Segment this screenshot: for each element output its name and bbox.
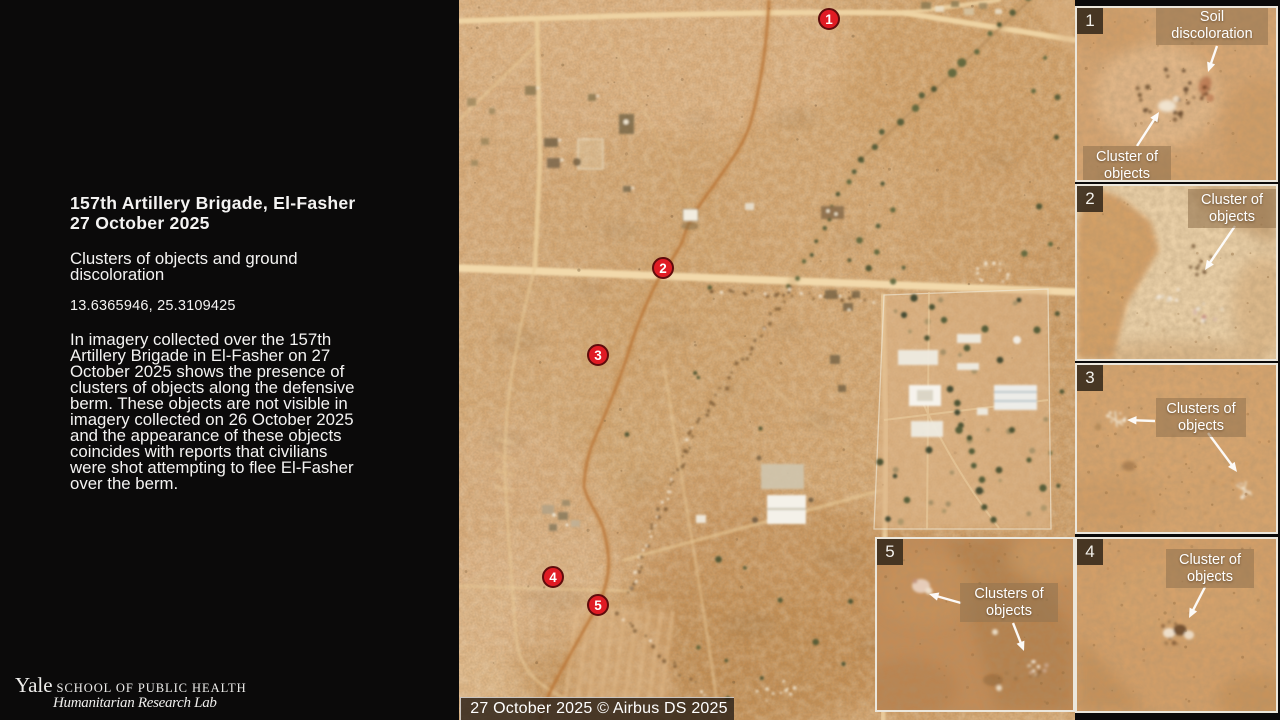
svg-text:3: 3 <box>594 348 602 363</box>
svg-text:4: 4 <box>549 570 557 585</box>
svg-text:5: 5 <box>594 598 602 613</box>
svg-text:2: 2 <box>659 261 667 276</box>
svg-text:1: 1 <box>825 12 833 27</box>
